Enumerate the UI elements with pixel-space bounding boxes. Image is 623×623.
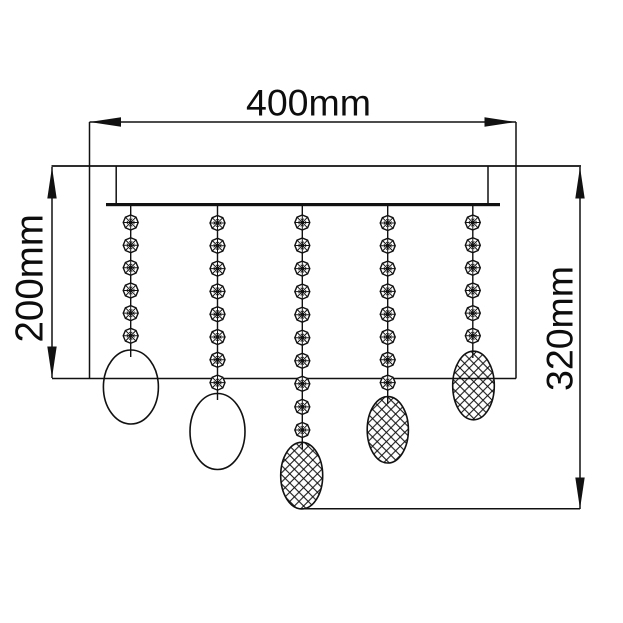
svg-text:320mm: 320mm <box>539 266 581 391</box>
svg-text:200mm: 200mm <box>9 214 52 342</box>
svg-text:400mm: 400mm <box>246 82 371 124</box>
